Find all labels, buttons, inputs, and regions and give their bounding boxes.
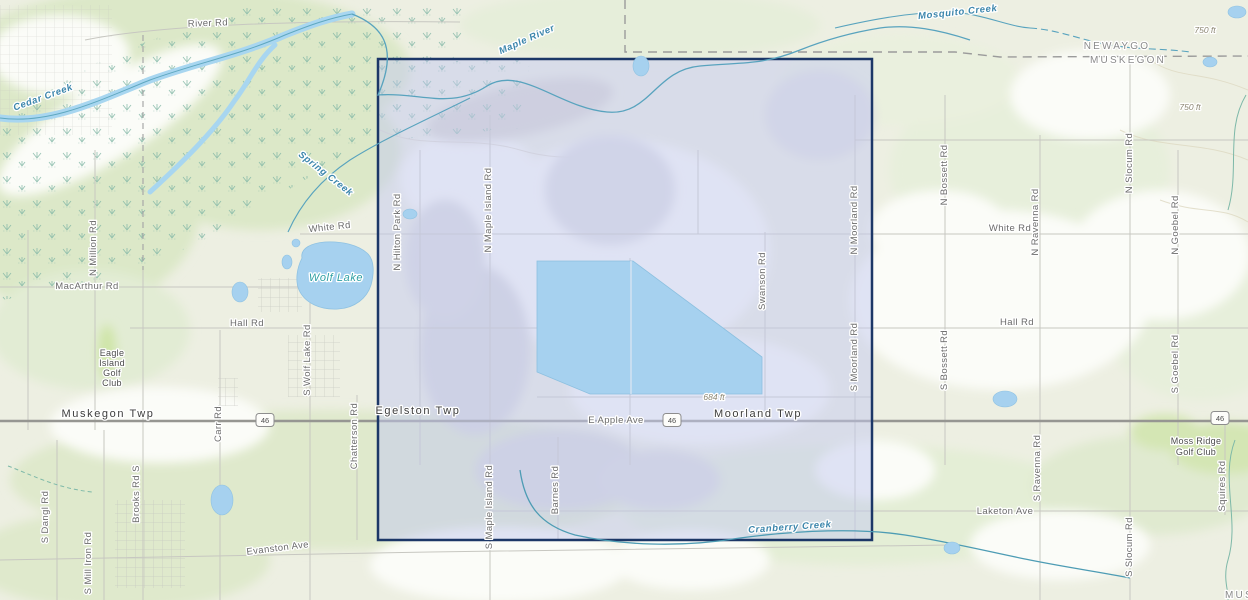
label-n-ravenna-rd: N Ravenna Rd (1030, 188, 1041, 255)
map-canvas[interactable]: River RdWhite RdMacArthur RdHall RdE App… (0, 0, 1248, 600)
label-s-moorland-rd: S Moorland Rd (849, 323, 860, 392)
highway-shield-46: 46 (256, 414, 274, 427)
label-n-slocum-rd: N Slocum Rd (1124, 133, 1135, 193)
label-s-slocum-rd: S Slocum Rd (1124, 517, 1135, 577)
highway-shield-46: 46 (1211, 412, 1229, 425)
label-s-maple-island-rd: S Maple Island Rd (484, 465, 495, 549)
label-muskegon: MUSKEGON (1090, 55, 1166, 66)
label-laketon-ave: Laketon Ave (977, 506, 1034, 517)
label-wolf-lake: Wolf Lake (309, 272, 363, 284)
label-swanson-rd: Swanson Rd (757, 252, 768, 310)
label-750-ft: 750 ft (1179, 102, 1201, 112)
label-newaygo: NEWAYGO (1084, 41, 1151, 52)
label-s-ravenna-rd: S Ravenna Rd (1032, 435, 1043, 502)
svg-text:46: 46 (1216, 414, 1224, 423)
svg-text:46: 46 (261, 416, 269, 425)
label-n-million-rd: N Million Rd (88, 220, 99, 276)
label-hall-rd: Hall Rd (230, 318, 264, 329)
highway-shield-46: 46 (663, 414, 681, 427)
label-n-moorland-rd: N Moorland Rd (849, 185, 860, 254)
label-river-rd: River Rd (188, 17, 229, 29)
svg-text:46: 46 (668, 416, 676, 425)
label-n-maple-island-rd: N Maple Island Rd (483, 168, 494, 253)
label-egelston-twp: Egelston Twp (375, 405, 460, 417)
label-n-hilton-park-rd: N Hilton Park Rd (392, 193, 403, 270)
label-moorland-twp: Moorland Twp (714, 408, 802, 420)
label-golf-club: Golf Club (1176, 447, 1216, 457)
label-s-goebel-rd: S Goebel Rd (1170, 335, 1181, 394)
label-s-dangl-rd: S Dangl Rd (40, 491, 51, 544)
label-750-ft: 750 ft (1194, 25, 1216, 35)
label-island: Island (99, 358, 125, 368)
label-muskegon-twp: Muskegon Twp (62, 408, 155, 420)
label-barnes-rd: Barnes Rd (550, 466, 561, 514)
label-e-apple-ave: E Apple Ave (588, 415, 643, 426)
label-s-wolf-lake-rd: S Wolf Lake Rd (302, 324, 313, 395)
label-white-rd: White Rd (989, 223, 1031, 234)
label-squires-rd: Squires Rd (1217, 461, 1228, 512)
label-carr-rd: Carr Rd (213, 406, 224, 442)
label-muskegon: MUSKEGON (1225, 590, 1248, 600)
topo-map[interactable]: River RdWhite RdMacArthur RdHall RdE App… (0, 0, 1248, 600)
label-684-ft: 684 ft (703, 392, 725, 402)
label-moss-ridge: Moss Ridge (1171, 436, 1222, 446)
label-club: Club (102, 378, 122, 388)
label-n-goebel-rd: N Goebel Rd (1170, 195, 1181, 254)
label-brooks-rd-s: Brooks Rd S (131, 465, 142, 523)
label-golf: Golf (103, 368, 121, 378)
label-s-mill-iron-rd: S Mill Iron Rd (83, 532, 94, 595)
label-hall-rd: Hall Rd (1000, 317, 1034, 328)
label-macarthur-rd: MacArthur Rd (55, 281, 118, 292)
label-n-bossett-rd: N Bossett Rd (939, 145, 950, 206)
label-chatterson-rd: Chatterson Rd (349, 403, 360, 469)
label-s-bossett-rd: S Bossett Rd (939, 330, 950, 390)
label-eagle: Eagle (100, 348, 125, 358)
